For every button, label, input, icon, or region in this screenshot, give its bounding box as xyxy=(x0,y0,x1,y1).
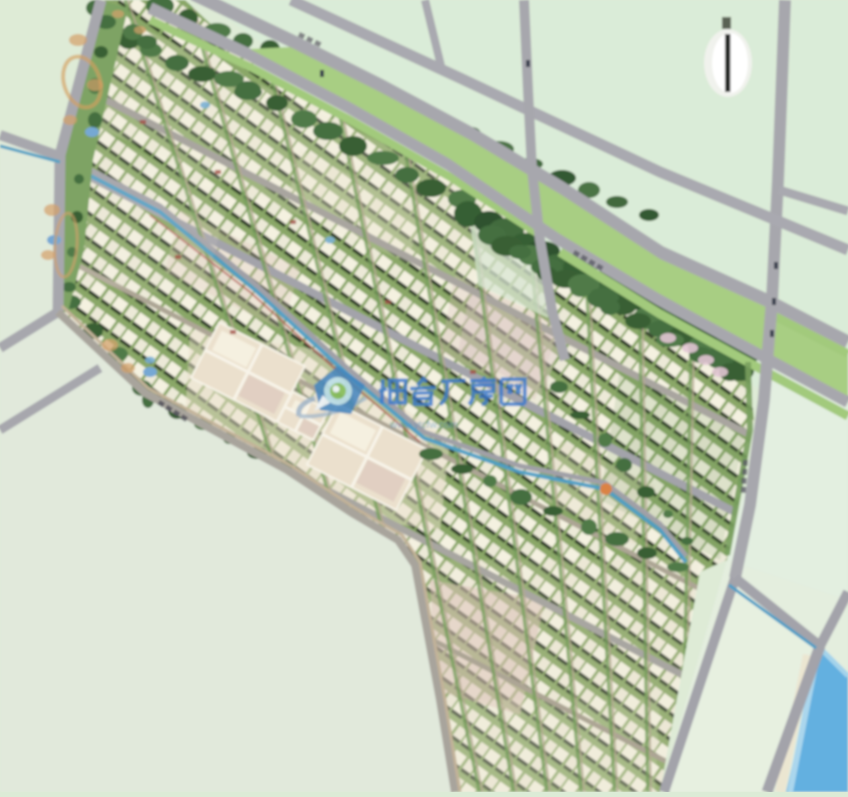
svg-text:www.ytcfw.com: www.ytcfw.com xyxy=(389,420,458,431)
